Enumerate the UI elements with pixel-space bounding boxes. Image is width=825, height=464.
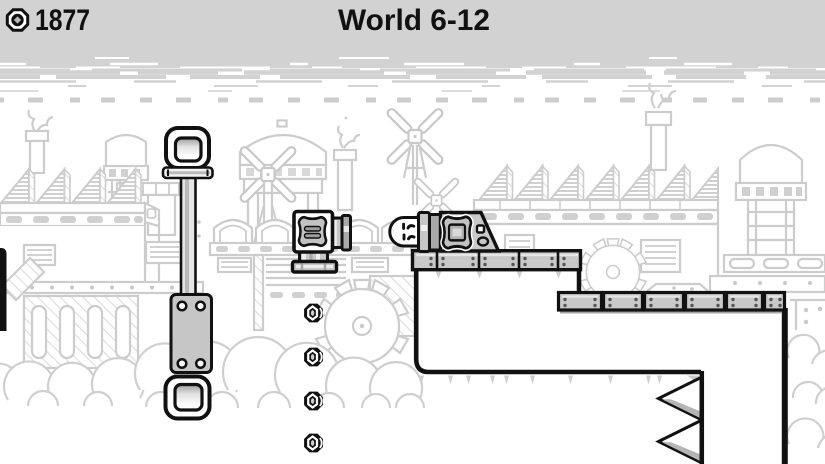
svg-text:World 6-12: World 6-12 [338,4,490,37]
svg-text:1877: 1877 [35,4,90,37]
